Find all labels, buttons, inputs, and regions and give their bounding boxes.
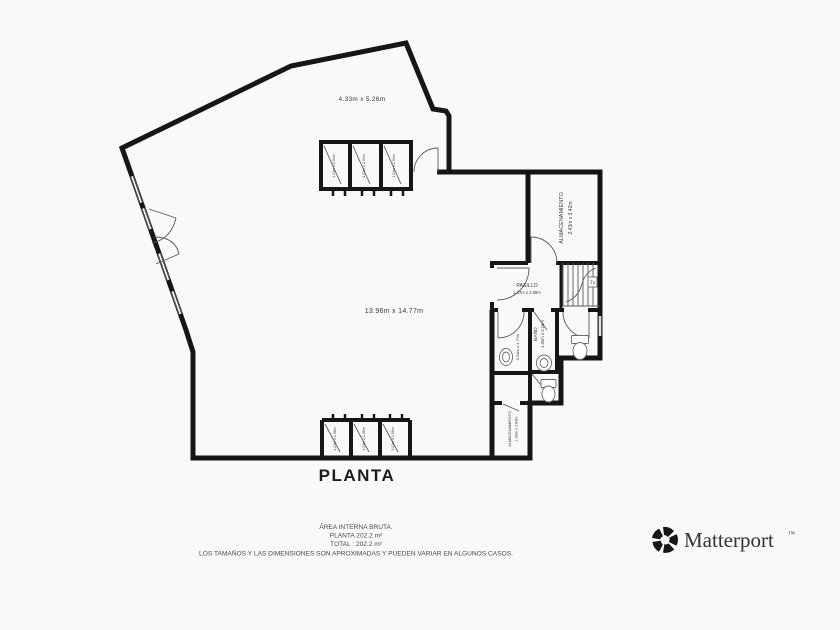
floor-plan-page: 1.21m x 2.04m 1.21m x 2.04m 1.21m x 2.04… [0, 0, 840, 630]
matterport-wordmark: Matterport [684, 528, 774, 552]
door-storage [531, 237, 557, 263]
closet-bottom-2-dims: 1.21m x 1.58m [362, 427, 366, 451]
storage-small-dims-label: 1.09m x 2.83m [515, 416, 519, 441]
door-wc-right [563, 312, 589, 338]
wc-left-dims-label: 0.94m x 1.77m [515, 333, 520, 360]
door-wc-left [498, 312, 524, 338]
floor-plan-canvas: 1.21m x 2.04m 1.21m x 2.04m 1.21m x 2.04… [0, 0, 840, 630]
sink-wc-left [500, 349, 513, 366]
bathroom-dims-label: 1.35m x 2.16m [540, 320, 545, 348]
matterport-trademark: ™ [788, 530, 795, 538]
closet-row-bottom: 1.21m x 1.58m 1.21m x 1.58m 1.21m x 1.58… [322, 414, 410, 457]
staircase: 7x [563, 263, 600, 306]
top-room-dims-label: 4.33m x 5.26m [339, 96, 386, 103]
matterport-brand: Matterport ™ [650, 527, 795, 556]
right-wall-window [599, 316, 602, 336]
toilet-wc-right [572, 336, 589, 360]
closet-bottom-1-dims: 1.21m x 1.58m [333, 427, 337, 451]
door-top-room [414, 148, 438, 172]
closet-bottom-3-dims: 1.21m x 1.58m [391, 427, 395, 451]
sink-bathroom [537, 355, 552, 371]
hallway-name-label: PASILLO [516, 283, 537, 289]
plan-title: PLANTA [319, 466, 396, 485]
storage-dims-label: 2.43m x 3.42m [568, 201, 574, 234]
toilet-small-room [541, 380, 556, 403]
footer-area-title: ÁREA INTERNA BRUTA. [319, 522, 393, 531]
storage-small-name-label: ALMACENAMIENTO [508, 411, 512, 447]
footer-disclaimer: LOS TAMAÑOS Y LAS DIMENSIONES SON APROXI… [199, 549, 513, 558]
main-room-dims-label: 13.96m x 14.77m [365, 308, 424, 315]
door-storage-small [503, 404, 519, 411]
bathroom-name-label: BAÑO [532, 327, 539, 341]
closet-top-2-dims: 1.21m x 2.04m [362, 154, 366, 178]
closet-row-top: 1.21m x 2.04m 1.21m x 2.04m 1.21m x 2.04… [321, 142, 411, 196]
footer-area-line: PLANTA 202.2 m² [330, 533, 383, 540]
closet-top-3-dims: 1.21m x 2.04m [392, 154, 396, 178]
storage-name-label: ALMACENAMIENTO [559, 192, 565, 244]
closet-top-1-dims: 1.21m x 2.04m [332, 154, 336, 178]
footer-total-line: TOTAL : 202.2 m² [330, 541, 383, 548]
stairs-count-label: 7x [590, 281, 596, 287]
matterport-logo-icon [650, 527, 680, 556]
hallway-dims-label: 1.47m x 2.08m [513, 290, 541, 295]
footer-area-summary: ÁREA INTERNA BRUTA. PLANTA 202.2 m² TOTA… [199, 522, 513, 558]
